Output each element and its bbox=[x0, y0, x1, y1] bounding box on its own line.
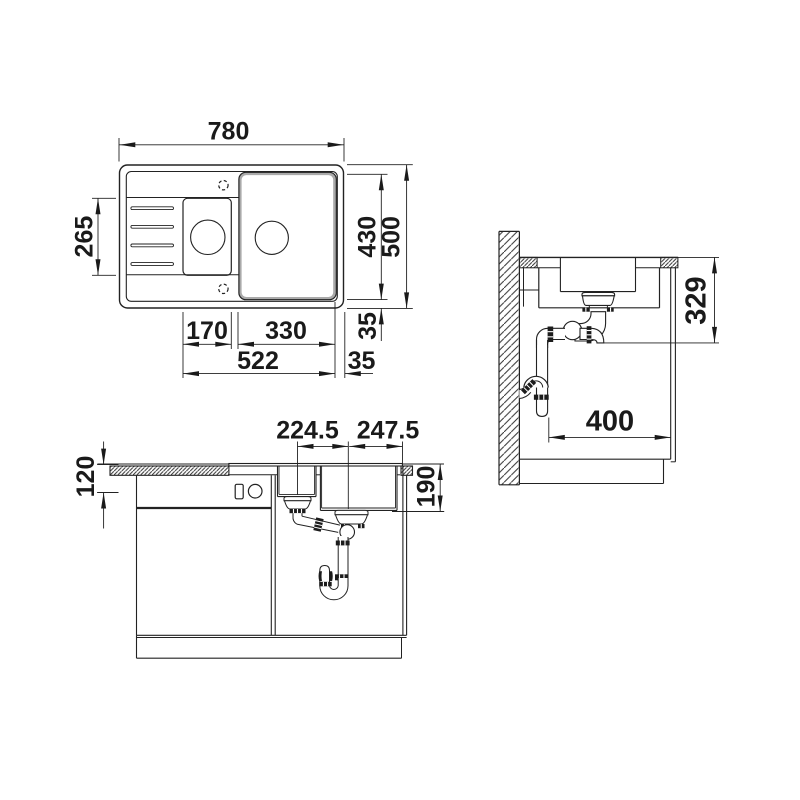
svg-text:330: 330 bbox=[265, 317, 307, 345]
svg-text:224.5: 224.5 bbox=[276, 417, 339, 445]
svg-text:500: 500 bbox=[378, 216, 406, 258]
svg-text:190: 190 bbox=[412, 466, 440, 508]
svg-text:522: 522 bbox=[237, 347, 279, 375]
svg-text:400: 400 bbox=[586, 406, 634, 438]
svg-text:35: 35 bbox=[348, 347, 376, 375]
svg-text:780: 780 bbox=[208, 118, 250, 146]
svg-text:329: 329 bbox=[681, 276, 713, 324]
svg-text:247.5: 247.5 bbox=[357, 417, 420, 445]
svg-text:170: 170 bbox=[186, 317, 228, 345]
svg-text:265: 265 bbox=[71, 216, 99, 258]
svg-text:120: 120 bbox=[72, 456, 100, 498]
svg-text:35: 35 bbox=[354, 312, 382, 340]
